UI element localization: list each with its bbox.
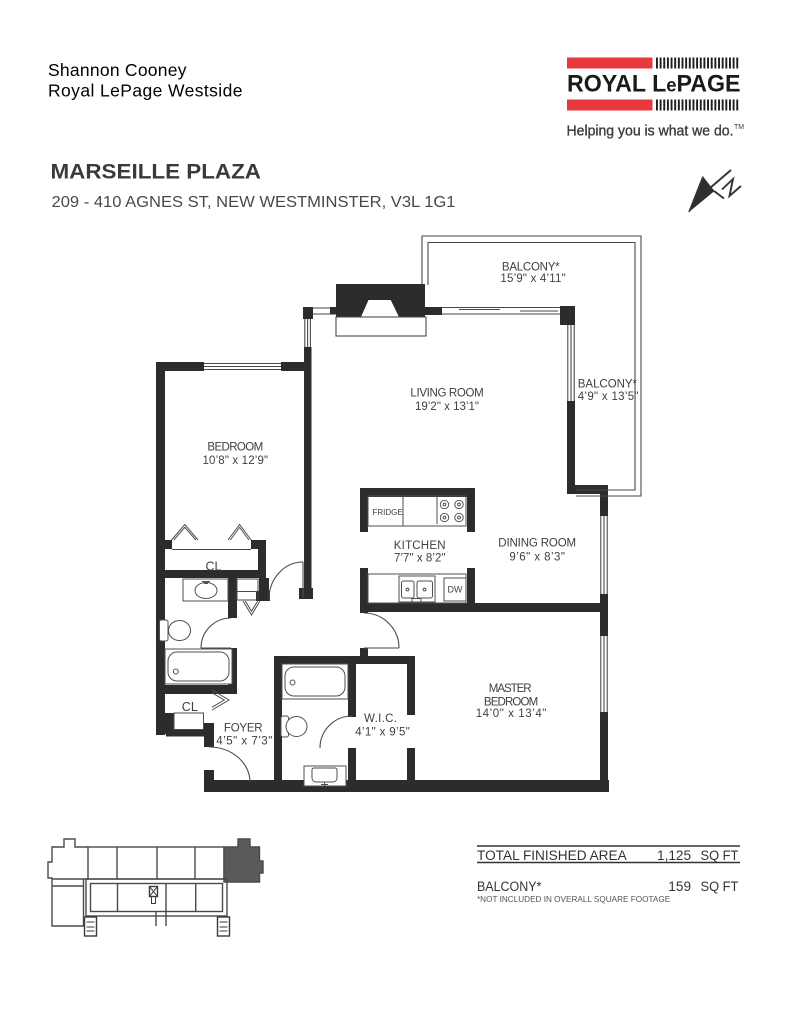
svg-text:CL: CL bbox=[206, 559, 222, 573]
svg-text:SQ FT: SQ FT bbox=[701, 879, 739, 894]
svg-text:ROYAL LePAGE: ROYAL LePAGE bbox=[567, 71, 741, 98]
svg-text:DW: DW bbox=[448, 585, 463, 595]
svg-text:19’2" x 13’1": 19’2" x 13’1" bbox=[415, 401, 479, 413]
svg-text:9’6" x 8’3": 9’6" x 8’3" bbox=[509, 552, 565, 564]
svg-text:SQ FT: SQ FT bbox=[701, 848, 739, 863]
svg-text:BALCONY*: BALCONY* bbox=[477, 879, 542, 894]
svg-text:BEDROOM: BEDROOM bbox=[484, 696, 538, 708]
svg-text:4’1" x 9’5": 4’1" x 9’5" bbox=[355, 726, 410, 738]
svg-text:MARSEILLE PLAZA: MARSEILLE PLAZA bbox=[51, 160, 262, 184]
svg-text:15’9" x 4’11": 15’9" x 4’11" bbox=[500, 273, 565, 285]
svg-text:BALCONY*: BALCONY* bbox=[502, 262, 560, 274]
svg-text:Shannon Cooney: Shannon Cooney bbox=[48, 60, 187, 80]
svg-text:159: 159 bbox=[668, 879, 691, 894]
svg-text:14’0" x 13’4": 14’0" x 13’4" bbox=[476, 708, 547, 720]
svg-text:W.I.C.: W.I.C. bbox=[364, 713, 397, 725]
svg-text:KITCHEN: KITCHEN bbox=[394, 540, 446, 552]
svg-text:FRIDGE: FRIDGE bbox=[373, 508, 403, 517]
svg-text:BALCONY*: BALCONY* bbox=[578, 378, 638, 390]
svg-text:4’9" x 13’5": 4’9" x 13’5" bbox=[578, 391, 639, 403]
svg-text:DINING ROOM: DINING ROOM bbox=[498, 538, 576, 550]
svg-text:Helping you is what we do.: Helping you is what we do. bbox=[567, 122, 734, 139]
svg-text:Royal LePage Westside: Royal LePage Westside bbox=[48, 81, 243, 101]
svg-text:BEDROOM: BEDROOM bbox=[207, 442, 263, 454]
svg-text:4’5" x 7’3": 4’5" x 7’3" bbox=[216, 736, 272, 748]
svg-text:FOYER: FOYER bbox=[224, 723, 263, 735]
svg-text:7’7" x 8’2": 7’7" x 8’2" bbox=[394, 553, 446, 565]
svg-text:10’8" x 12’9": 10’8" x 12’9" bbox=[203, 455, 269, 467]
svg-text:1,125: 1,125 bbox=[657, 848, 691, 863]
svg-text:CL: CL bbox=[182, 700, 198, 714]
svg-text:209 - 410 AGNES ST, NEW WESTMI: 209 - 410 AGNES ST, NEW WESTMINSTER, V3L… bbox=[52, 194, 456, 211]
svg-text:MASTER: MASTER bbox=[489, 683, 532, 695]
svg-text:LIVING ROOM: LIVING ROOM bbox=[410, 388, 483, 400]
svg-text:TM: TM bbox=[734, 124, 744, 131]
svg-text:*NOT INCLUDED IN OVERALL SQUAR: *NOT INCLUDED IN OVERALL SQUARE FOOTAGE bbox=[477, 894, 671, 904]
svg-text:TOTAL FINISHED AREA: TOTAL FINISHED AREA bbox=[477, 848, 627, 863]
